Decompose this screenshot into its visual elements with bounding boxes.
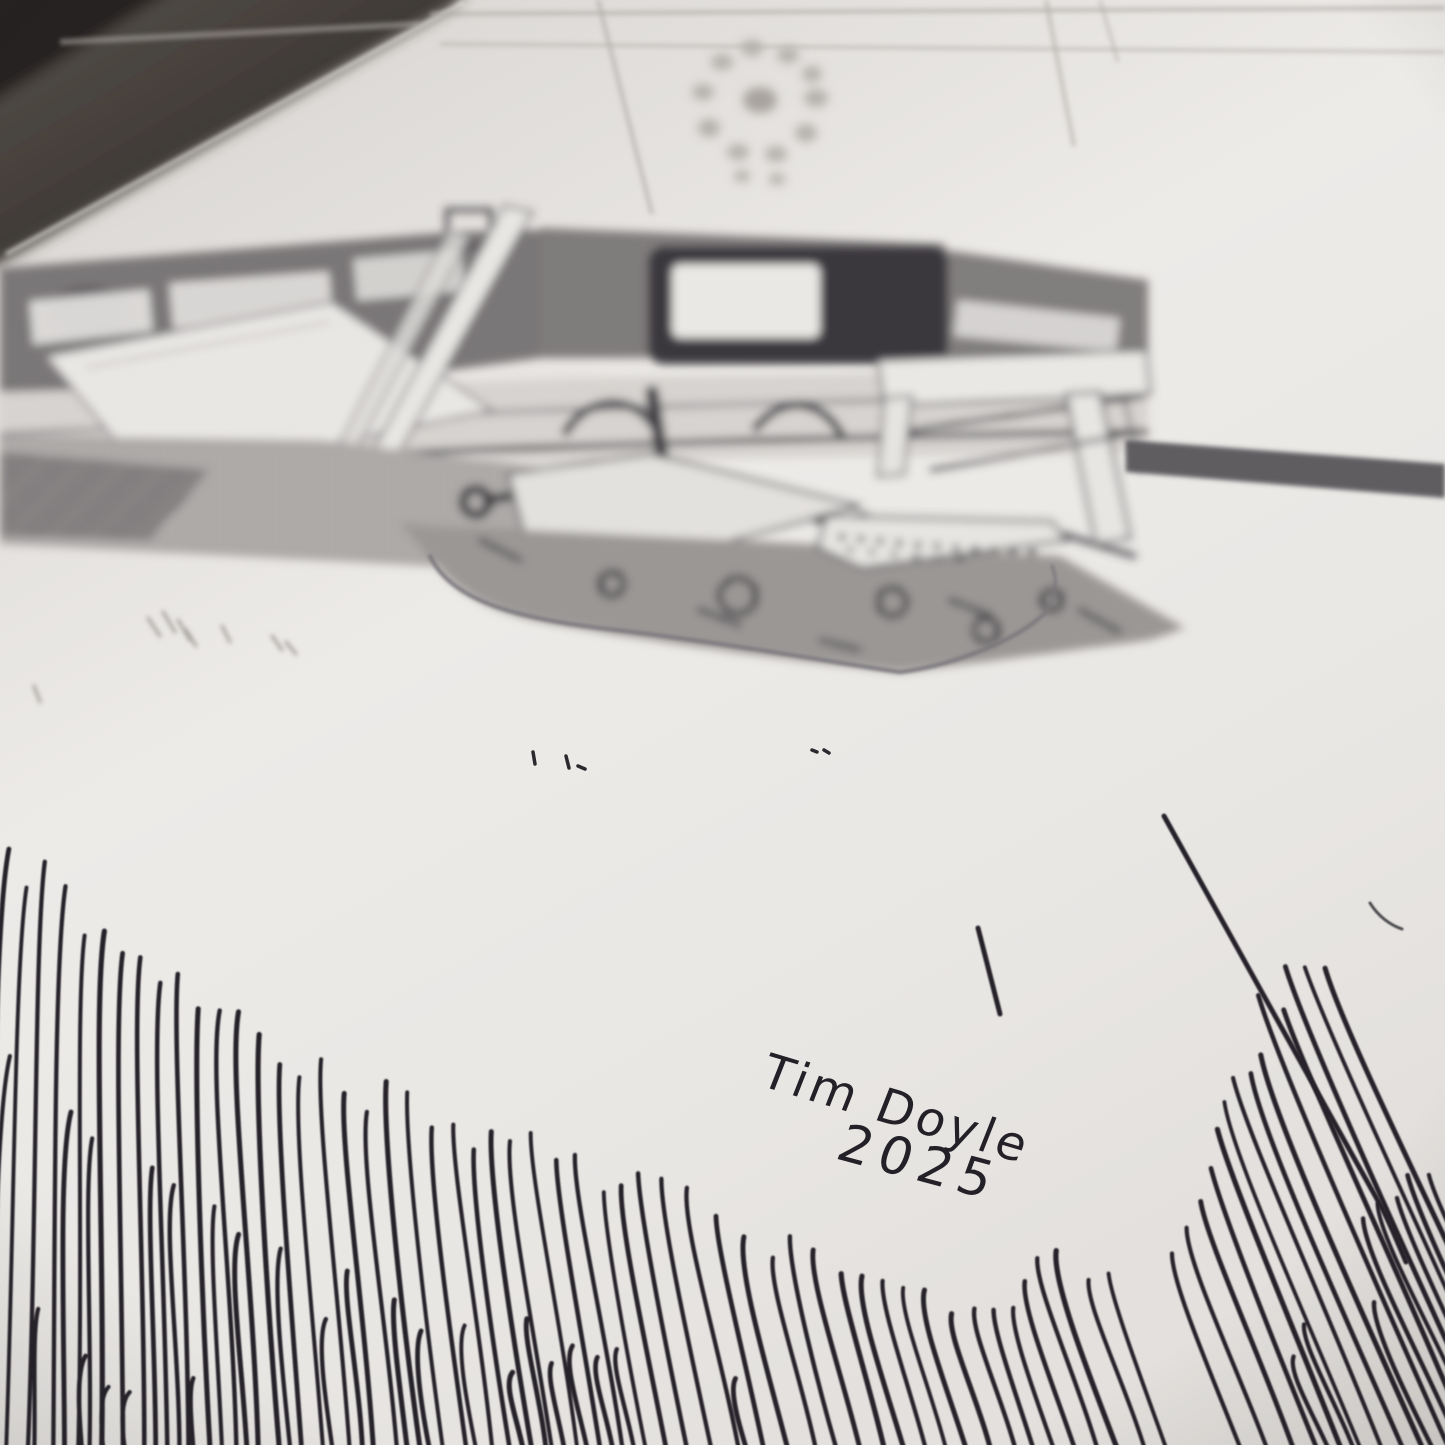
photo-vignette xyxy=(0,0,1445,1445)
photo-canvas: Tim Doyle 2025 xyxy=(0,0,1445,1445)
photo-of-ink-drawing: Tim Doyle 2025 xyxy=(0,0,1445,1445)
